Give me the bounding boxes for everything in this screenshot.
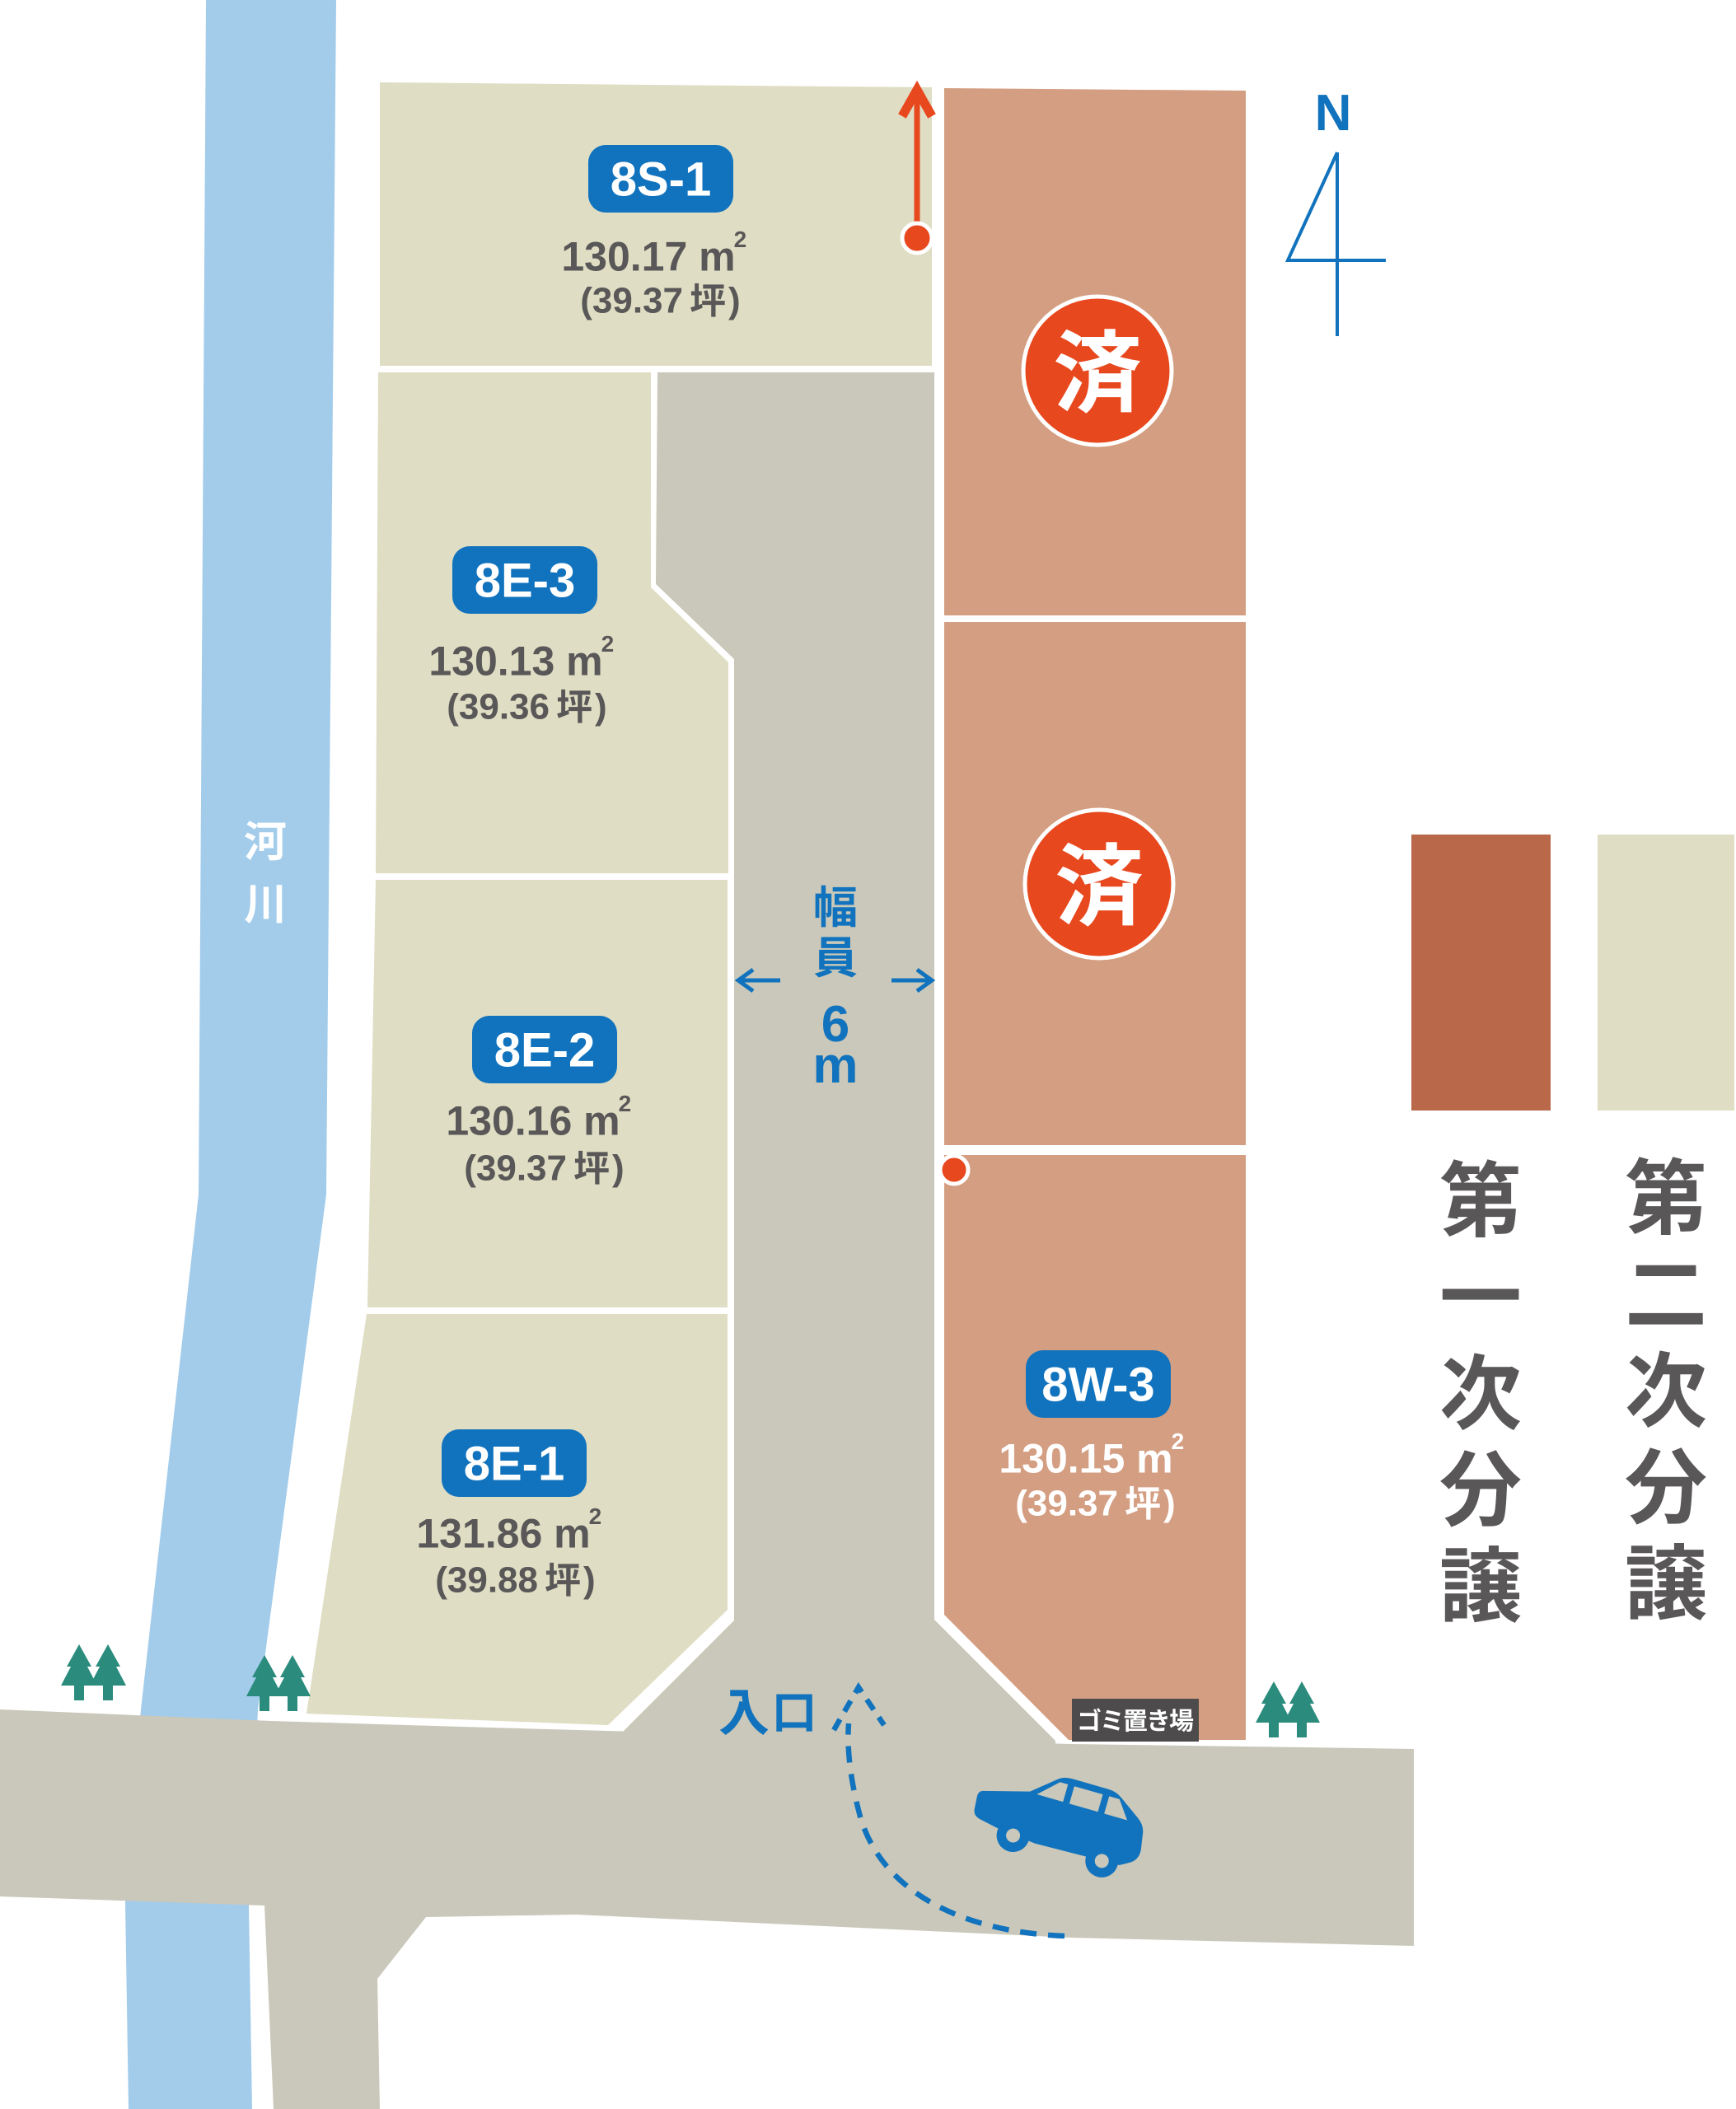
svg-text:N: N	[1315, 85, 1352, 142]
svg-text:): )	[612, 1148, 625, 1188]
svg-text:130.16 m: 130.16 m	[446, 1098, 620, 1144]
svg-text:2: 2	[601, 631, 615, 657]
svg-text:2: 2	[619, 1091, 632, 1116]
svg-text:m: m	[812, 1037, 858, 1094]
svg-text:(39.37: (39.37	[464, 1148, 567, 1188]
svg-text:(39.36: (39.36	[447, 686, 550, 727]
svg-text:(39.37: (39.37	[580, 280, 683, 320]
svg-text:2: 2	[589, 1503, 602, 1529]
svg-text:): )	[728, 280, 741, 320]
svg-text:131.86 m: 131.86 m	[416, 1511, 590, 1557]
svg-text:130.17 m: 130.17 m	[561, 234, 735, 280]
svg-text:130.13 m: 130.13 m	[428, 638, 602, 685]
svg-text:8E-1: 8E-1	[464, 1437, 565, 1490]
svg-text:2: 2	[1172, 1429, 1185, 1454]
svg-text:(39.88: (39.88	[435, 1560, 538, 1600]
svg-text:8E-3: 8E-3	[475, 554, 576, 607]
svg-text:(39.37: (39.37	[1015, 1483, 1118, 1523]
svg-text:): )	[583, 1560, 596, 1600]
svg-text:8S-1: 8S-1	[611, 152, 712, 206]
svg-text:): )	[595, 686, 607, 727]
svg-text:8W-3: 8W-3	[1041, 1358, 1154, 1411]
svg-text:130.15 m: 130.15 m	[999, 1436, 1172, 1482]
svg-text:2: 2	[734, 227, 747, 252]
svg-text:): )	[1163, 1483, 1176, 1523]
svg-text:8E-2: 8E-2	[494, 1023, 596, 1077]
